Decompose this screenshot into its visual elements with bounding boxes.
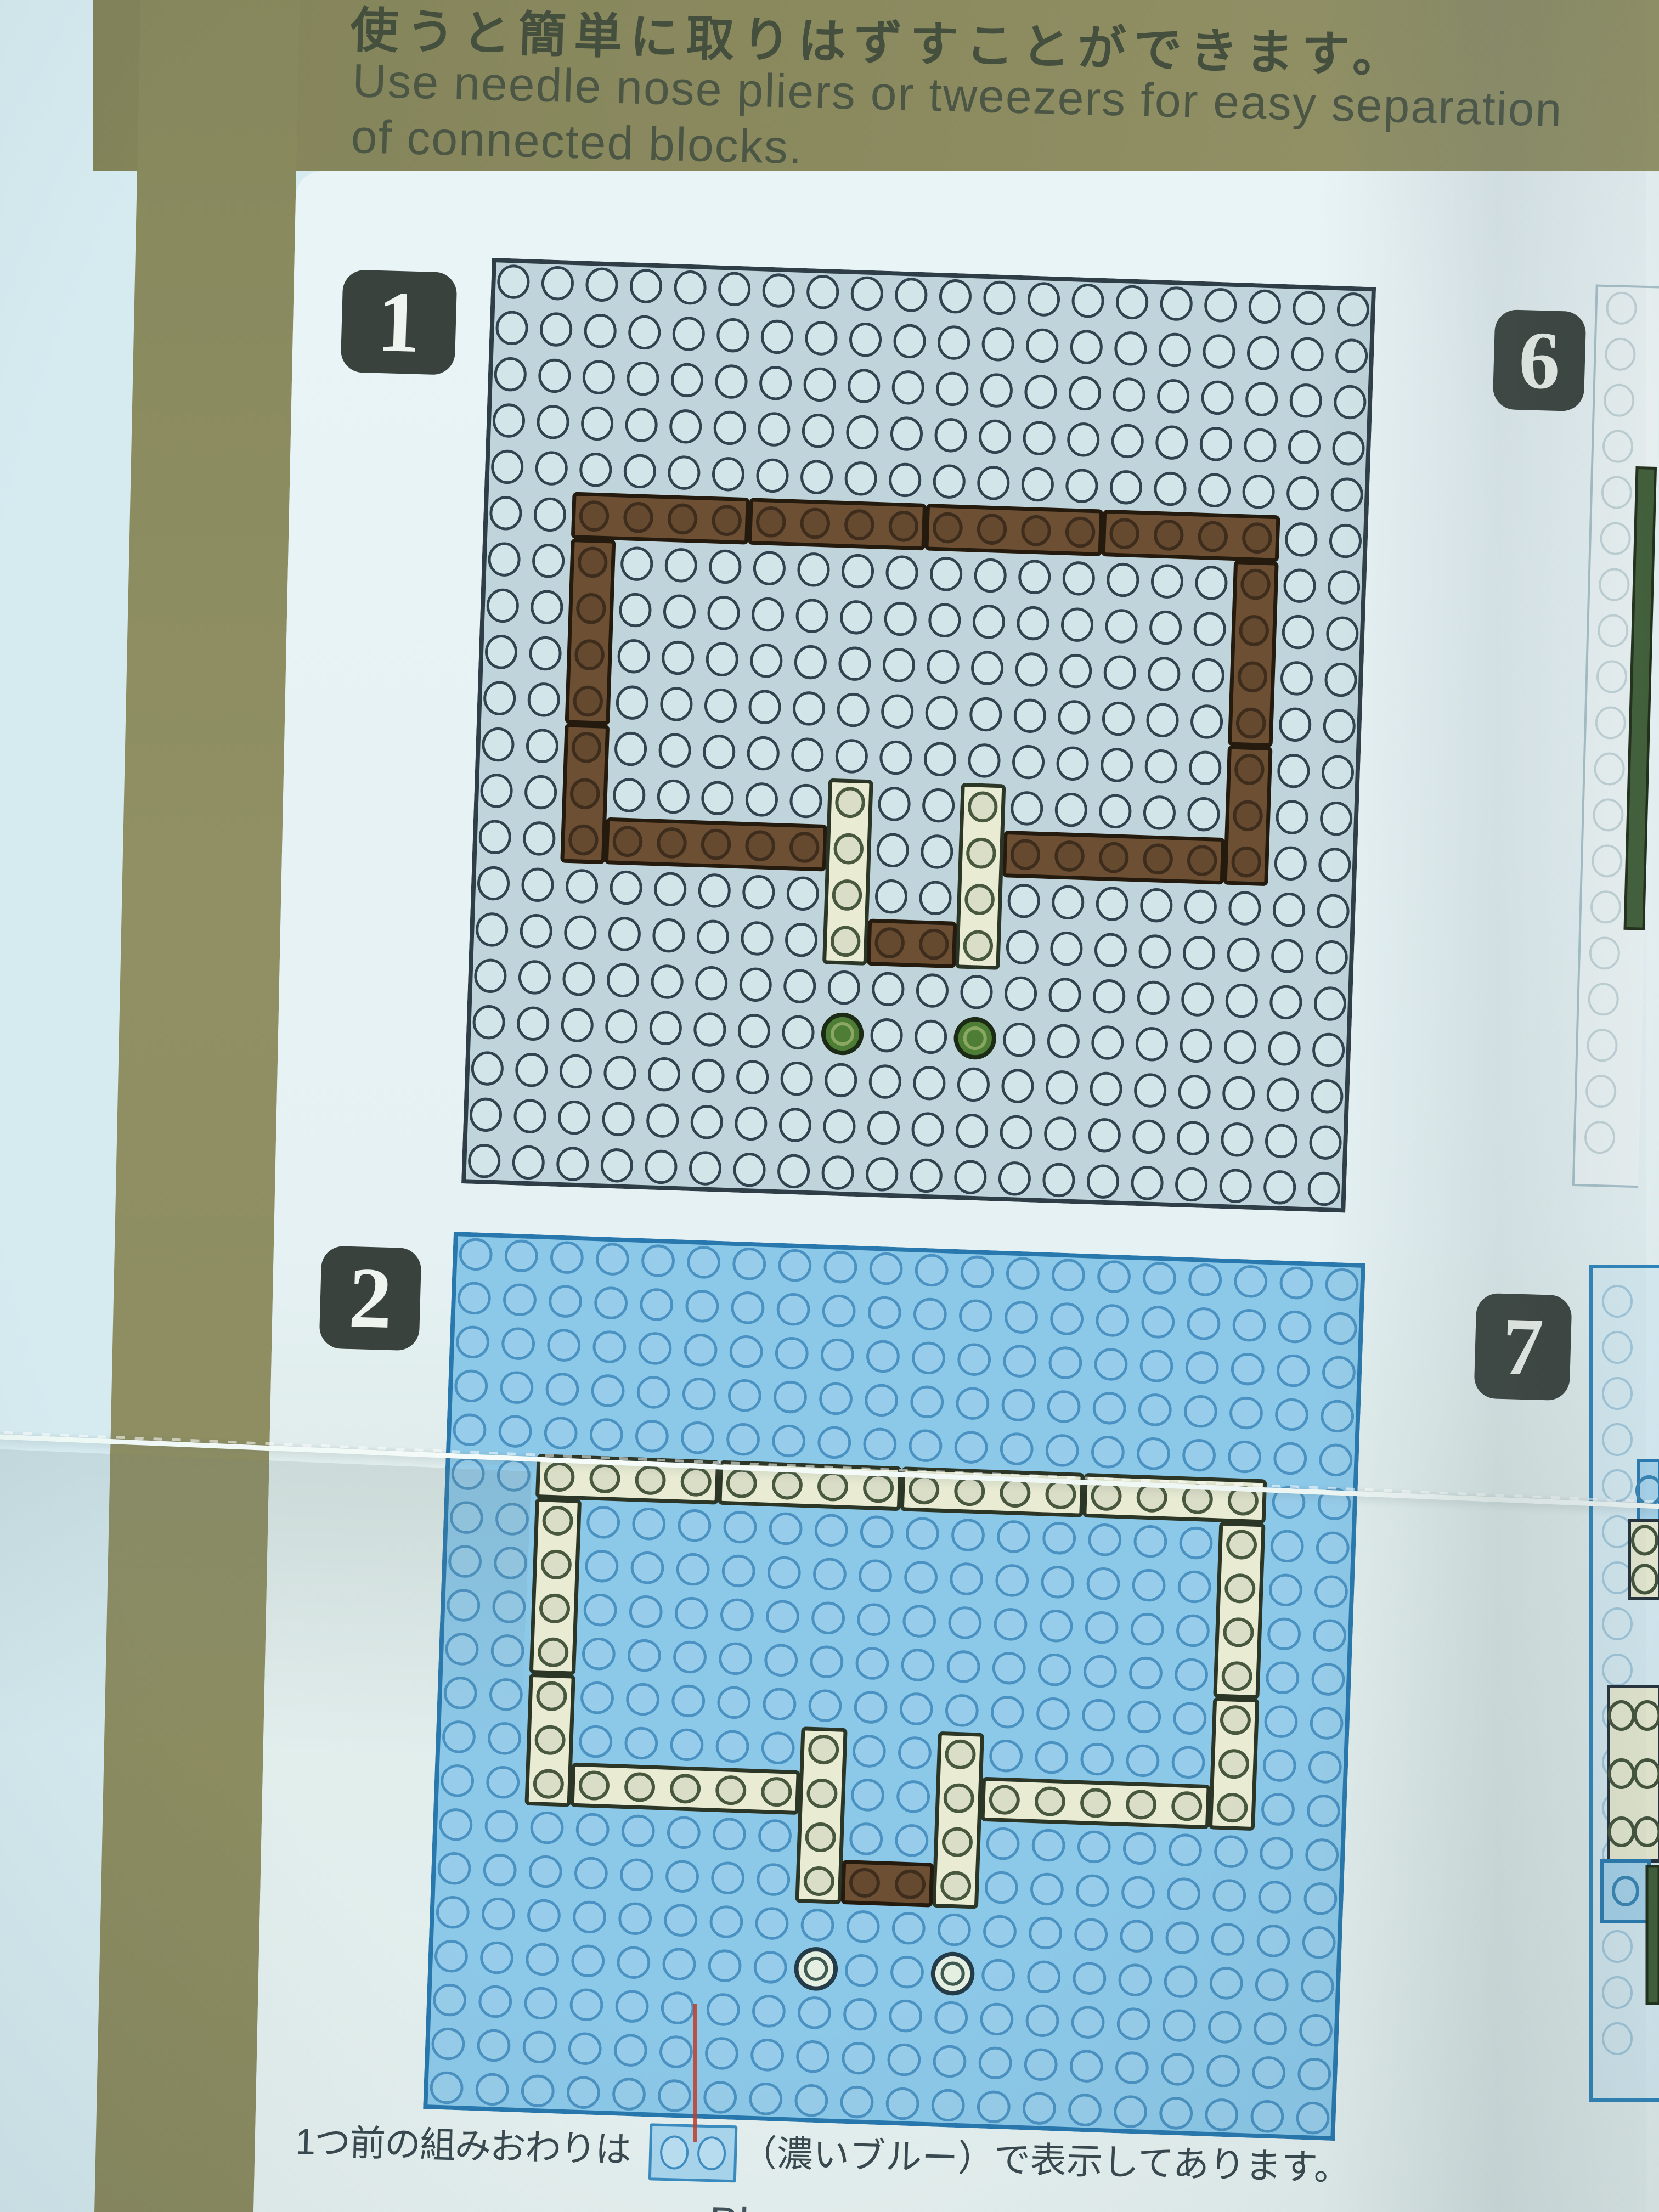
step-7-badge: 7: [1474, 1293, 1572, 1401]
fold-shadow: [0, 1448, 532, 1833]
footer-english-partial: Blue area: [709, 2197, 903, 2212]
step-2-grid-diagram: [423, 1232, 1365, 2141]
step-2-badge: 2: [319, 1245, 421, 1351]
step-1-badge: 1: [340, 269, 457, 375]
instruction-sheet-photo: 使うと簡単に取りはずすことができます。 Use needle nose plie…: [0, 0, 1659, 2212]
footer-japanese-prefix: 1つ前の組みおわりは: [295, 2112, 631, 2173]
step-7-partial-diagram: [1580, 1256, 1659, 2112]
stud-oval-icon: [697, 2136, 726, 2171]
footer-japanese-suffix: （濃いブルー）で表示してあります。: [740, 2124, 1351, 2192]
stud-oval-icon: [660, 2135, 690, 2170]
red-leader-line: [693, 2004, 697, 2142]
header-text-block: 使うと簡単に取りはずすことができます。 Use needle nose plie…: [347, 0, 1659, 213]
step-6-badge: 6: [1492, 309, 1586, 412]
header-english-line-2: of connected blocks.: [351, 110, 804, 175]
step-1-grid-diagram: [461, 258, 1376, 1213]
